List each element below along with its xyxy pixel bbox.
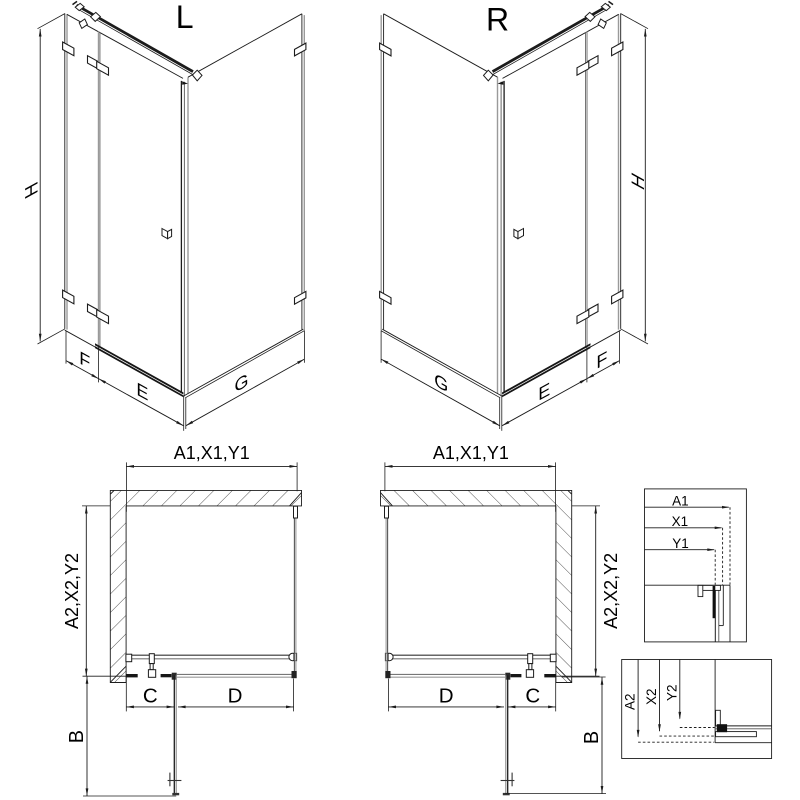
svg-text:A1,X1,Y1: A1,X1,Y1 — [174, 443, 250, 463]
svg-text:A1: A1 — [672, 494, 689, 509]
svg-text:Y1: Y1 — [672, 536, 689, 551]
svg-text:X1: X1 — [672, 514, 689, 529]
svg-text:C: C — [525, 685, 540, 708]
svg-text:D: D — [439, 685, 454, 708]
svg-text:Y2: Y2 — [664, 685, 679, 702]
svg-text:R: R — [486, 1, 509, 37]
svg-text:A1,X1,Y1: A1,X1,Y1 — [433, 443, 509, 463]
svg-text:A2,X2,Y2: A2,X2,Y2 — [601, 553, 621, 629]
svg-text:A2,X2,Y2: A2,X2,Y2 — [62, 553, 82, 629]
svg-text:B: B — [66, 730, 88, 743]
svg-text:C: C — [143, 685, 158, 708]
svg-text:B: B — [581, 731, 603, 744]
svg-text:X2: X2 — [644, 688, 659, 705]
svg-text:L: L — [176, 0, 194, 35]
svg-text:A2: A2 — [623, 694, 638, 711]
svg-text:D: D — [228, 685, 243, 708]
